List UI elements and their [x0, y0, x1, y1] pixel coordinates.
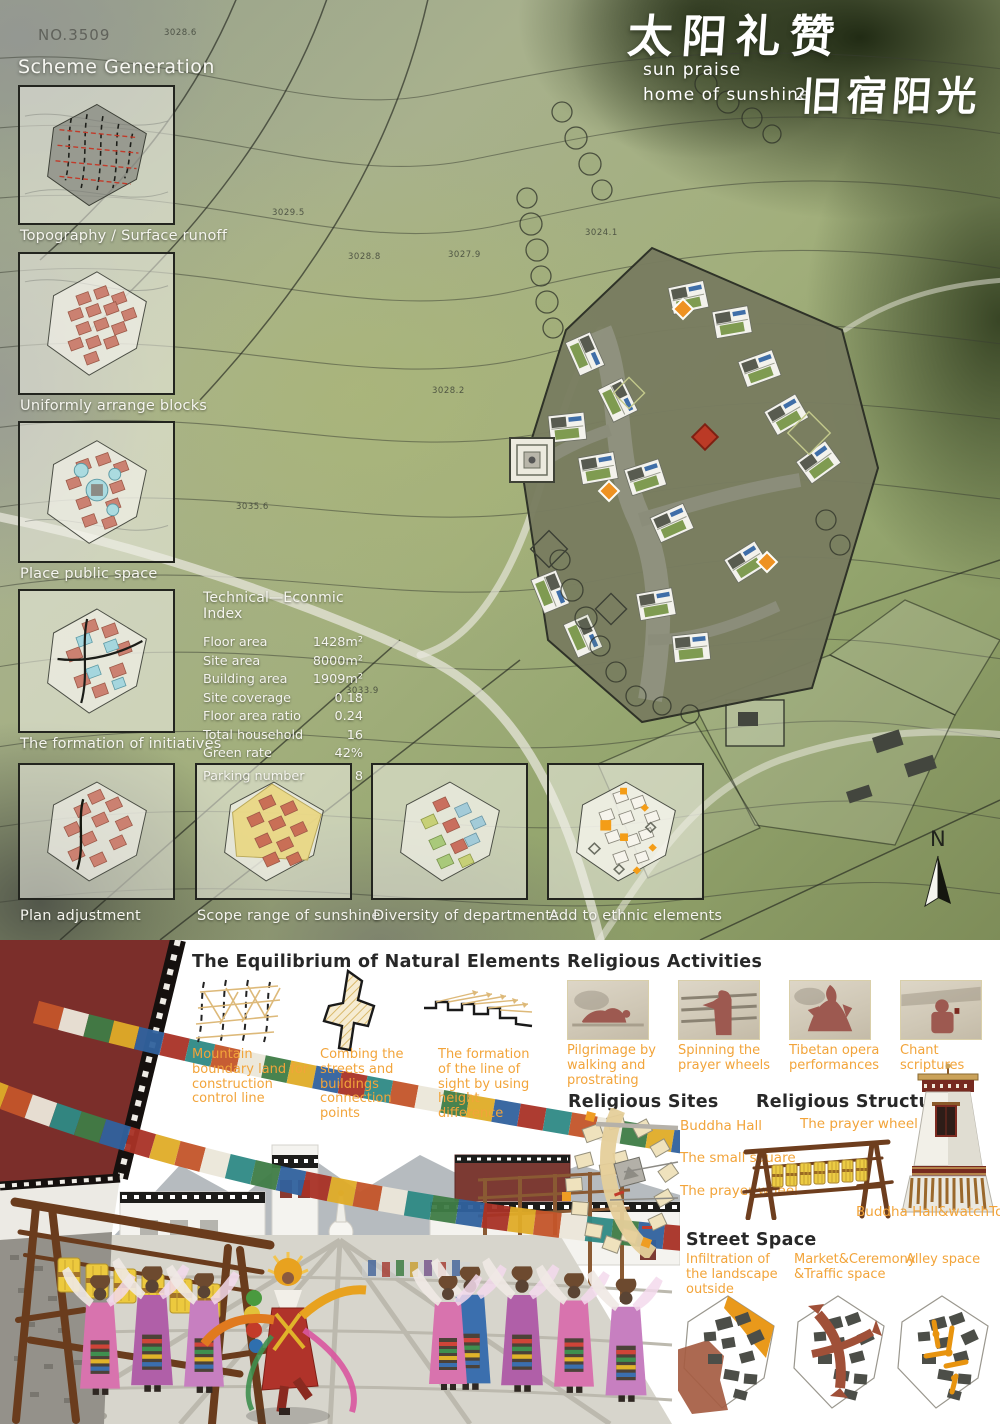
- contour-label: 3027.9: [448, 250, 481, 260]
- activity-label: Tibetan opera performances: [789, 1044, 885, 1074]
- structure-label-bottom: Buddha Hall&watchTower: [856, 1204, 1000, 1220]
- sightline-diagram: [420, 988, 535, 1040]
- scheme-step-box-topography: [18, 85, 175, 225]
- streets-combing-diagram: [318, 968, 380, 1054]
- street-diagram-infiltration: [678, 1292, 780, 1418]
- step-caption: Diversity of departments: [373, 908, 559, 924]
- title-chinese-main: 太阳礼赞: [626, 0, 847, 65]
- photo-prayer-wheels: [678, 980, 760, 1040]
- index-label: Site area: [203, 654, 260, 669]
- index-label: Site coverage: [203, 691, 291, 706]
- step-caption: Place public space: [20, 566, 158, 582]
- street-label: Infiltration of the landscape outside: [686, 1253, 780, 1297]
- religious-activities-heading: Religious Activities: [567, 952, 762, 972]
- mountain-boundary-diagram: [190, 978, 290, 1046]
- equilibrium-item-label: The formation of the line of sight by us…: [438, 1048, 542, 1122]
- contour-label: 3028.8: [348, 252, 381, 262]
- index-value: 8000m²: [313, 654, 363, 669]
- shrine-square-icon: [510, 438, 554, 482]
- street-space-heading: Street Space: [686, 1230, 817, 1250]
- equilibrium-item-label: Combing the streets and buildings connec…: [320, 1048, 432, 1122]
- technical-index-heading: Technical—Econmic Index: [203, 590, 363, 622]
- technical-economic-index: Technical—Econmic Index Floor area1428m²…: [203, 590, 363, 788]
- street-diagram-market: [788, 1292, 890, 1418]
- activity-label: Pilgrimage by walking and prostrating: [567, 1044, 659, 1088]
- contour-label: 3028.6: [164, 28, 197, 38]
- scheme-step-box-public-space: [18, 421, 175, 563]
- index-label: Total household: [203, 728, 303, 743]
- index-value: 0.18: [335, 691, 364, 706]
- index-value: 42%: [335, 746, 363, 761]
- step-caption: Scope range of sunshine: [197, 908, 381, 924]
- prayer-wheel-cylinders: [772, 1159, 867, 1187]
- index-label: Floor area ratio: [203, 709, 301, 724]
- index-label: Floor area: [203, 635, 267, 650]
- index-value: 0.24: [335, 709, 364, 724]
- index-value: 8: [355, 769, 363, 784]
- north-arrow-icon: N: [925, 827, 951, 906]
- north-letter: N: [930, 827, 946, 851]
- index-label: Green rate: [203, 746, 272, 761]
- scheme-step-box-ethnic: [547, 763, 704, 900]
- prayer-wheel-marker: [562, 1192, 571, 1201]
- analysis-panel: The Equilibrium of Natural Elements: [0, 940, 1000, 1424]
- step-caption: Uniformly arrange blocks: [20, 398, 207, 414]
- contour-label: 3035.6: [236, 502, 269, 512]
- street-diagram-alley: [892, 1292, 994, 1418]
- contour-label: 3029.5: [272, 208, 305, 218]
- scheme-step-box-adjustment: [18, 763, 175, 900]
- prayer-wheel-marker: [585, 1111, 596, 1122]
- watchtower-illustration: [902, 1062, 994, 1214]
- step-caption: The formation of initiatives: [20, 736, 221, 752]
- step-caption: Topography / Surface runoff: [20, 228, 227, 244]
- step-caption: Plan adjustment: [20, 908, 141, 924]
- street-label: Alley space: [906, 1253, 986, 1268]
- scheme-step-box-blocks: [18, 252, 175, 395]
- structure-label-top: The prayer wheel: [800, 1116, 918, 1132]
- presentation-board: N NO.3509 Scheme Generation 3028.6 3029.…: [0, 0, 1000, 1424]
- scheme-generation-heading: Scheme Generation: [18, 56, 215, 78]
- photo-pilgrimage: [567, 980, 649, 1040]
- index-value: 1428m²: [313, 635, 363, 650]
- scheme-step-box-departments: [371, 763, 528, 900]
- index-label: Parking number: [203, 769, 304, 784]
- title-chinese-secondary: 旧宿阳光: [800, 64, 984, 122]
- street-label: Market&Ceremony &Traffic space: [794, 1253, 904, 1283]
- index-value: 16: [347, 728, 363, 743]
- contour-label: 3024.1: [585, 228, 618, 238]
- index-label: Building area: [203, 672, 288, 687]
- equilibrium-item-label: Mountain boundary land for construction …: [192, 1048, 314, 1107]
- scheme-step-box-initiatives: [18, 589, 175, 733]
- contour-label: 3028.2: [432, 386, 465, 396]
- board-number: NO.3509: [38, 26, 110, 44]
- religious-sites-diagram: [556, 1108, 692, 1258]
- activity-label: Spinning the prayer wheels: [678, 1044, 770, 1074]
- photo-tibetan-opera: [789, 980, 871, 1040]
- subtitle-english-1: sun praise: [643, 60, 741, 80]
- photo-chant-scriptures: [900, 980, 982, 1040]
- aerial-site-map: N NO.3509 Scheme Generation 3028.6 3029.…: [0, 0, 1000, 940]
- index-value: 1909m²: [313, 672, 363, 687]
- subtitle-english-2: home of sunshine: [643, 85, 810, 105]
- step-caption: Add to ethnic elements: [549, 908, 722, 924]
